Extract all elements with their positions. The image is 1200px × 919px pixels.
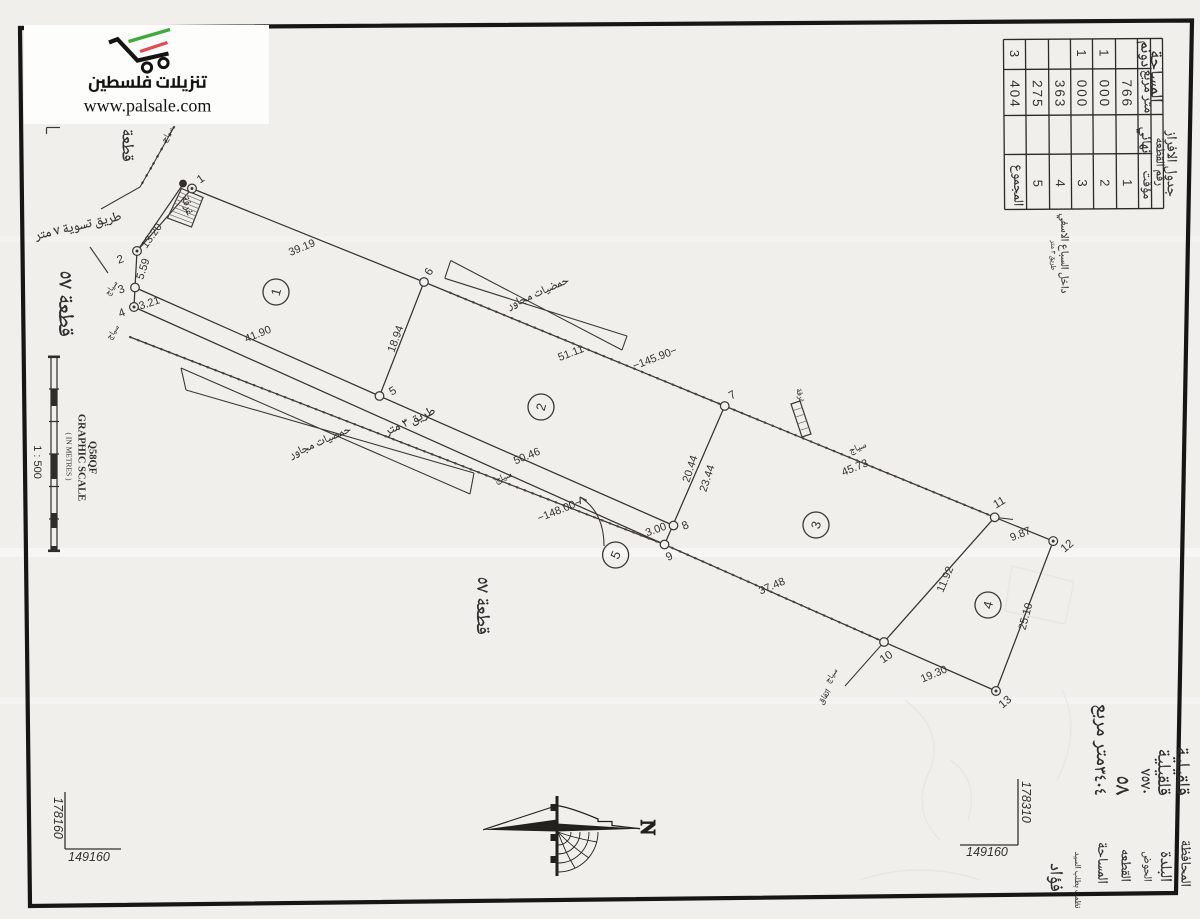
svg-text:3: 3 <box>1075 179 1090 186</box>
svg-text:1: 1 <box>1120 179 1135 186</box>
svg-text:766: 766 <box>1119 79 1134 108</box>
svg-text:www.palsale.com: www.palsale.com <box>84 96 212 116</box>
svg-text:149160: 149160 <box>966 845 1008 859</box>
svg-text:Q58QF: Q58QF <box>87 441 98 474</box>
svg-text:149160: 149160 <box>68 850 110 864</box>
svg-text:( IN METRES ): ( IN METRES ) <box>65 432 74 481</box>
svg-text:363: 363 <box>1052 80 1067 109</box>
svg-text:GRAPHIC SCALE: GRAPHIC SCALE <box>76 414 87 501</box>
svg-text:178160: 178160 <box>51 797 65 839</box>
svg-text:1 : 500: 1 : 500 <box>31 445 43 479</box>
svg-text:178310: 178310 <box>1019 781 1033 823</box>
svg-text:3: 3 <box>1007 50 1022 57</box>
svg-text:N: N <box>636 820 660 835</box>
svg-text:275: 275 <box>1030 80 1045 109</box>
svg-text:1: 1 <box>1074 49 1089 56</box>
svg-text:4: 4 <box>1053 179 1068 186</box>
svg-text:000: 000 <box>1074 80 1089 109</box>
svg-text:2: 2 <box>1097 179 1112 186</box>
svg-text:000: 000 <box>1097 80 1112 109</box>
svg-text:1: 1 <box>1097 49 1112 56</box>
svg-text:404: 404 <box>1007 80 1022 109</box>
svg-text:5: 5 <box>1030 180 1045 187</box>
